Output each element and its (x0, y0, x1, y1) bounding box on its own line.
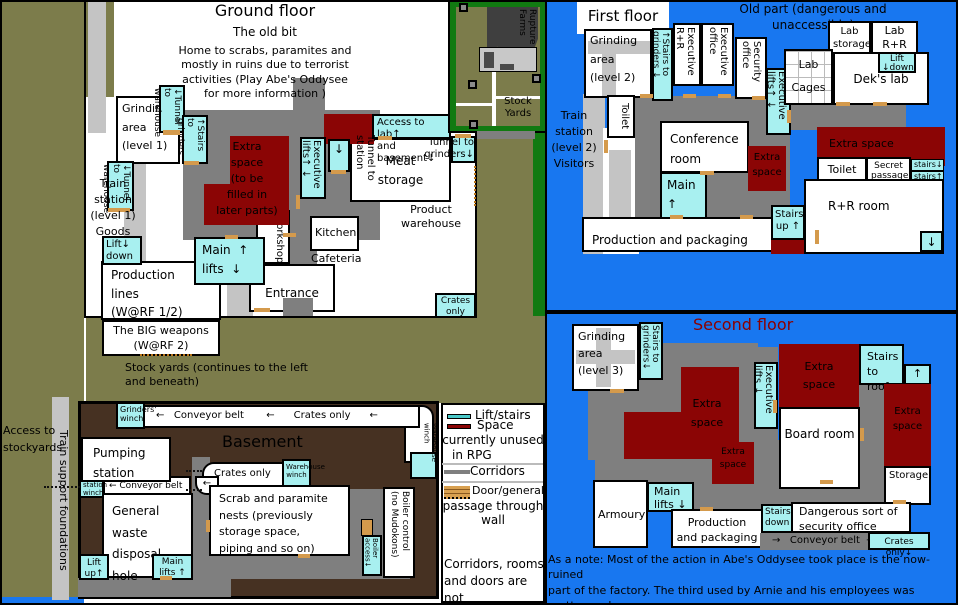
main-lifts-lift: Main lifts ↑ (152, 554, 193, 580)
rupture-farms-label: Rupture Farms (508, 9, 536, 63)
door-legend-label: Door/general (472, 484, 544, 498)
door (670, 215, 683, 219)
lab-cages-room: Lab Cages (784, 49, 833, 105)
main-lifts-lift: Main ↑ lifts ↓ (660, 172, 707, 219)
pumping-station-room: Pumping station (81, 437, 171, 482)
big-weapons-room: The BIG weapons (W@RF 2) (102, 320, 220, 356)
extra-space-d: Extra space (884, 384, 931, 469)
minimap-marker (469, 120, 478, 129)
stockyards-olive-strip (477, 135, 535, 316)
crates-only-lift: Crates only (435, 293, 476, 318)
dotted-line (186, 489, 202, 492)
door (787, 110, 791, 123)
door (873, 102, 887, 106)
note-text: As a note: Most of the action in Abe's O… (548, 552, 940, 604)
stairs-to-grinders-lift: ↑Stairs to grinders ↓ (652, 28, 673, 101)
stairs-down-small-lift: stairs↓ (911, 159, 944, 171)
door (254, 308, 270, 312)
extra-space-mid: Extra space (748, 146, 786, 191)
minimap-building-detail (500, 64, 514, 70)
access-stockyards-label: Access to stockyards (3, 423, 63, 459)
unused-stub (771, 240, 805, 254)
door (225, 235, 238, 239)
door (640, 94, 653, 98)
scale-note-label: Corridors, rooms and doors are not to sc… (444, 556, 544, 604)
boiler-control-room: Boiler control (no Mudokons) (383, 487, 415, 578)
board-room: Board room (779, 407, 860, 489)
minimap-road-left (456, 103, 494, 106)
door (610, 389, 624, 393)
train-track-top (88, 0, 106, 133)
door (378, 136, 392, 140)
door (455, 134, 471, 138)
minimap-marker (532, 74, 541, 83)
train-station-goods-label: Train station (level 1) Goods (84, 176, 142, 252)
executive-lifts-lift: Executive lifts↑ ↓ (300, 137, 326, 199)
boiler-door (361, 519, 373, 536)
door (815, 230, 819, 244)
tunnel-to-station-label: Tunnel to station (350, 135, 376, 199)
space-legend-label-3: in RPG (452, 448, 532, 463)
dotted-line (44, 486, 80, 489)
warehouse-winch-label: Warehouse winch (409, 423, 437, 478)
production-packaging-room: Production and packaging (582, 217, 775, 252)
kitchen-room: Kitchen (310, 216, 359, 251)
extra-space-label: Extra space (to be filled in later parts… (204, 139, 290, 223)
stairs-to-roof-lift: Stairs to roof (859, 344, 904, 385)
main-lifts-lift: Main ↑ lifts ↓ (194, 237, 265, 285)
door-legend-label-3: wall (442, 513, 544, 527)
dotted-passage (140, 354, 192, 357)
scrab-nests-room: Scrab and paramite nests (previously sto… (209, 485, 350, 556)
crates-only-lift: Crates only↓ (868, 532, 930, 550)
door (604, 140, 608, 153)
minimap-marker (468, 80, 477, 89)
door-swatch (444, 486, 470, 499)
train-station-visitors-label: Train station (level 2) Visitors (545, 108, 603, 176)
security-office-room: Dangerous sort of security office (791, 502, 911, 533)
tunnel-to-grinders-label: Tunnel to grinders↓ (417, 137, 474, 163)
corridor-entrance-stub (283, 298, 313, 316)
corridor-legend-label: Corridors (470, 464, 540, 479)
lift-up-lift: Lift up↑ (79, 554, 109, 580)
lift-down-lift: Lift ↓down (878, 52, 916, 73)
corridor-bottom-left (78, 578, 231, 597)
warehouse-winch-lift-2: Warehouse winch (282, 459, 311, 487)
cafeteria-label: Cafeteria (311, 252, 373, 268)
door (860, 428, 864, 441)
door (752, 96, 765, 100)
grinders-winch-lift: Grinders' winch (116, 402, 145, 429)
storage-room: Storage (884, 466, 931, 505)
grinding-area-label: Grinding area (level 2) (590, 32, 650, 96)
main-lifts-lift: Main lifts ↓ (647, 482, 694, 512)
door (740, 215, 753, 219)
door (773, 400, 777, 413)
space-swatch (447, 424, 471, 429)
lab-storage-room: Lab storage (828, 21, 871, 54)
space-legend-label: Space (477, 418, 537, 433)
door (160, 576, 172, 580)
ground-floor-subtitle: The old bit (160, 25, 370, 41)
door (718, 94, 731, 98)
security-office-room: Security office (735, 37, 767, 99)
conveyor-pipe-top: ← Conveyor belt ← Crates only ← (140, 405, 420, 428)
minimap-building-detail (484, 52, 494, 68)
stock-yards-label: Stock yards (continues to the left and b… (125, 361, 315, 395)
executive-lifts-lift: Executive lifts ↓ (754, 362, 778, 429)
production-packaging-room: Production and packaging (671, 509, 763, 548)
door (283, 233, 296, 237)
extra-space-c: Extra space (779, 344, 859, 410)
door (836, 102, 850, 106)
lift-down-corner: ↓ (920, 231, 943, 252)
basement-title: Basement (222, 432, 312, 454)
stockyards-olive-left (0, 0, 86, 316)
stairs-down-lift: Stairs down↓ (761, 504, 793, 533)
ground-floor-description: Home to scrabs, paramites and mostly in … (140, 44, 390, 102)
stairs-to-grinders-lift: Stairs to grinders↓ (639, 322, 663, 380)
door (700, 171, 714, 175)
product-warehouse-label: Product warehouse (385, 203, 477, 237)
olive-left (0, 316, 84, 605)
executive-office-room: Executive office (701, 23, 734, 86)
door (893, 500, 906, 504)
door (683, 94, 696, 98)
corridor-swatch (444, 470, 470, 474)
tunnel-to-station-lift: ↓ (328, 139, 350, 172)
door (296, 195, 300, 209)
minimap-stock-yards-label: Stock Yards (494, 96, 542, 124)
first-floor-title: First floor (577, 7, 669, 27)
door (163, 130, 180, 135)
door (820, 480, 833, 484)
dotted-line (186, 470, 202, 473)
grinding-area-label: Grinding area (level 3) (578, 328, 638, 390)
stairs-to-roof-arrow: ↑ (904, 364, 931, 385)
stairs-up-lift: Stairs up ↑ (771, 205, 805, 240)
legend-divider (442, 481, 543, 483)
stairs-to-grinders-lift: ↑Stairs to grinders (182, 115, 208, 164)
extra-space-a-label: Extra space (672, 395, 742, 439)
door (184, 161, 199, 165)
minimap-road-band (477, 131, 535, 139)
minimap-marker (459, 3, 468, 12)
space-legend-label-2: currently unused (442, 433, 544, 448)
toilet-room: Toilet (607, 95, 635, 138)
executive-rr-room: Executive R+R (673, 23, 701, 86)
second-floor-title: Second floor (693, 315, 823, 337)
rupture-farms-floor-plan-map: Grinding area (level 1)Meat storageWorks… (0, 0, 958, 605)
door (331, 170, 346, 174)
lab-rr-room: Lab R+R (871, 21, 918, 54)
lift-swatch (447, 414, 471, 419)
door (206, 520, 210, 532)
armoury-room: Armoury (593, 480, 648, 548)
ground-floor-title: Ground floor (160, 1, 370, 22)
door (298, 554, 310, 558)
water-strip (0, 597, 84, 605)
dotted-path-right (474, 166, 477, 206)
extra-space-b: Extra space (712, 442, 754, 484)
door (700, 507, 713, 511)
conference-room: Conference room (660, 121, 749, 173)
door-legend-label-2: passage through (442, 499, 544, 513)
boiler-access-lift: Boiler access↓ (362, 535, 382, 576)
